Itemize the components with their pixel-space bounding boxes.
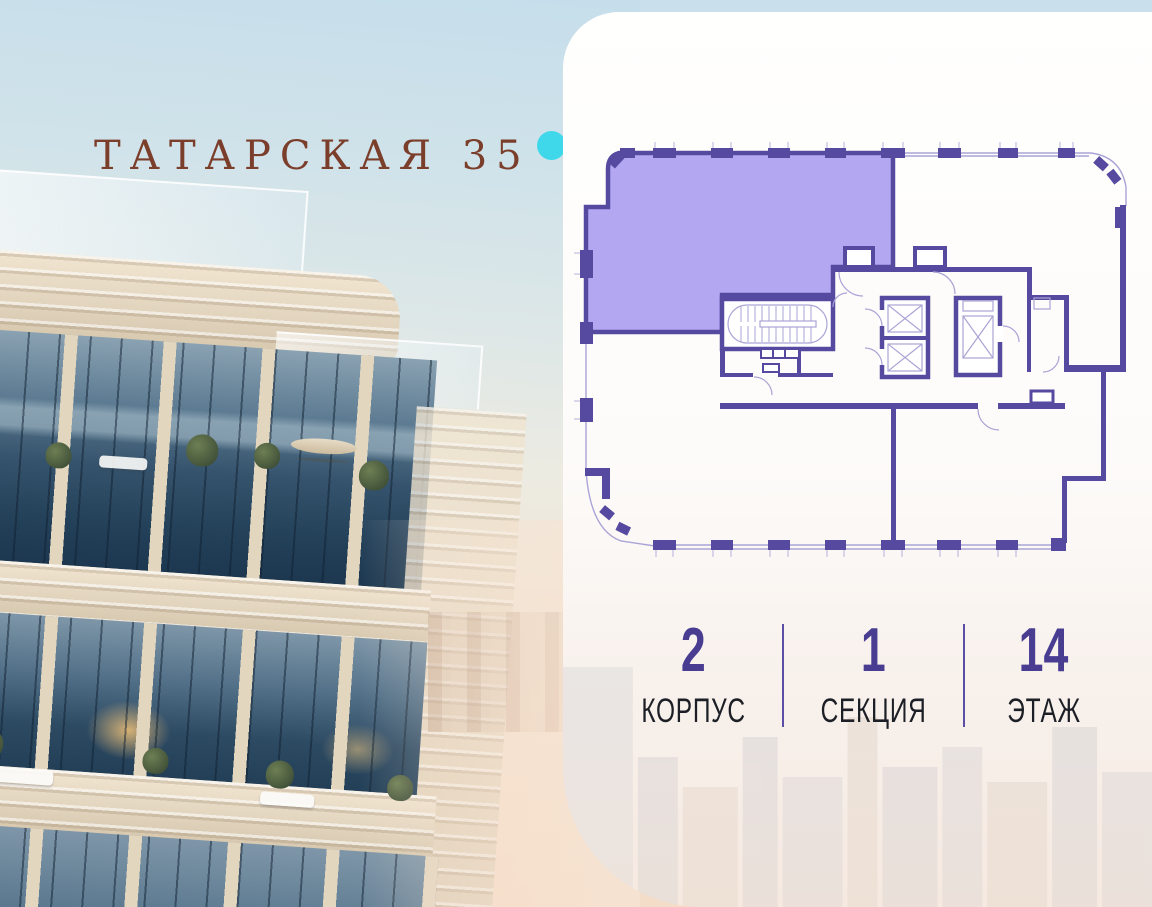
window-ticks-left — [574, 253, 580, 419]
apartment-location-stats: 2 КОРПУС 1 СЕКЦИЯ 14 ЭТАЖ — [621, 620, 1107, 731]
building-photo: ТАТАРСКАЯ 35 — [0, 0, 640, 907]
brand-header: ТАТАРСКАЯ 35 — [94, 136, 566, 176]
etazh-label: ЭТАЖ — [1007, 692, 1081, 731]
window-ticks-top — [655, 142, 1073, 148]
floorplan-card: 2 КОРПУС 1 СЕКЦИЯ 14 ЭТАЖ — [563, 12, 1152, 907]
window-ticks-bottom — [656, 550, 1016, 557]
sektsiya-value: 1 — [861, 620, 886, 682]
stat-sektsiya: 1 СЕКЦИЯ — [800, 620, 947, 731]
page: ТАТАРСКАЯ 35 — [0, 0, 1152, 907]
sektsiya-label: СЕКЦИЯ — [820, 692, 926, 731]
elevator-shaft — [878, 298, 928, 377]
etazh-value: 14 — [1019, 620, 1069, 682]
elevator-shaft — [956, 298, 1003, 375]
stat-divider — [782, 624, 784, 727]
korpus-label: КОРПУС — [641, 692, 746, 731]
stat-divider — [963, 624, 965, 727]
floor-plan[interactable] — [573, 140, 1138, 560]
stairwell — [722, 299, 833, 372]
stat-korpus: 2 КОРПУС — [621, 620, 766, 731]
brand-logo: ТАТАРСКАЯ 35 — [94, 136, 531, 176]
window-segments-bottom — [599, 505, 1066, 551]
stat-etazh: 14 ЭТАЖ — [981, 620, 1107, 731]
brand-cyan-dot-icon — [537, 131, 566, 160]
korpus-value: 2 — [681, 620, 706, 682]
